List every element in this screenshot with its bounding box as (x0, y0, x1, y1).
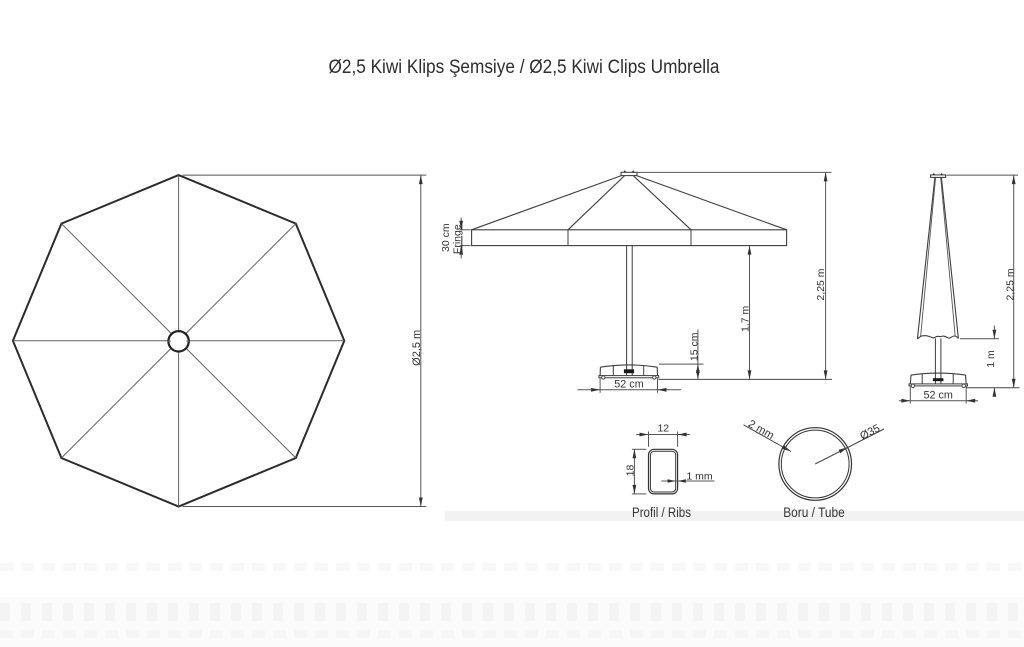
svg-text:Fringe: Fringe (451, 224, 463, 254)
svg-text:52 cm: 52 cm (923, 390, 952, 402)
svg-text:1,7 m: 1,7 m (739, 306, 751, 333)
svg-text:2,25 m: 2,25 m (1004, 268, 1016, 300)
svg-text:Profil / Ribs: Profil / Ribs (632, 504, 691, 520)
svg-text:Boru / Tube: Boru / Tube (783, 504, 845, 520)
svg-text:2 mm: 2 mm (746, 418, 776, 442)
svg-text:Ø2,5 Kiwi Klips Şemsiye / Ø2,5: Ø2,5 Kiwi Klips Şemsiye / Ø2,5 Kiwi Clip… (329, 57, 720, 78)
svg-text:15 cm: 15 cm (688, 332, 700, 361)
svg-text:30 cm: 30 cm (440, 223, 452, 252)
svg-text:12: 12 (657, 422, 669, 434)
svg-text:2,25 m: 2,25 m (815, 268, 827, 300)
svg-text:Ø2,5 m: Ø2,5 m (411, 330, 423, 366)
svg-text:Ø35: Ø35 (858, 422, 882, 442)
svg-text:1 m: 1 m (985, 350, 997, 368)
svg-text:52 cm: 52 cm (614, 379, 643, 391)
svg-text:18: 18 (625, 465, 637, 477)
svg-text:1 mm: 1 mm (686, 470, 713, 482)
